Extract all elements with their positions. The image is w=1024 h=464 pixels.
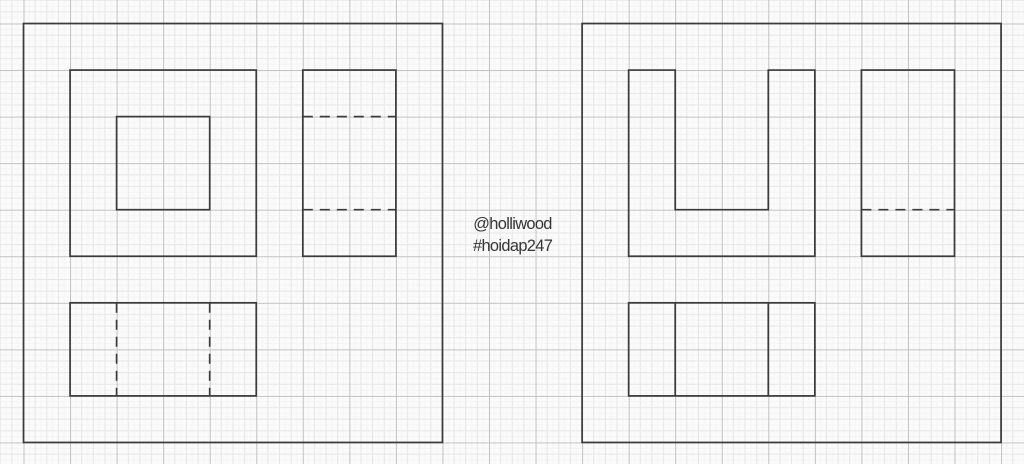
svg-text:@holliwood: @holliwood <box>473 215 552 233</box>
svg-text:#hoidap247: #hoidap247 <box>473 237 553 255</box>
